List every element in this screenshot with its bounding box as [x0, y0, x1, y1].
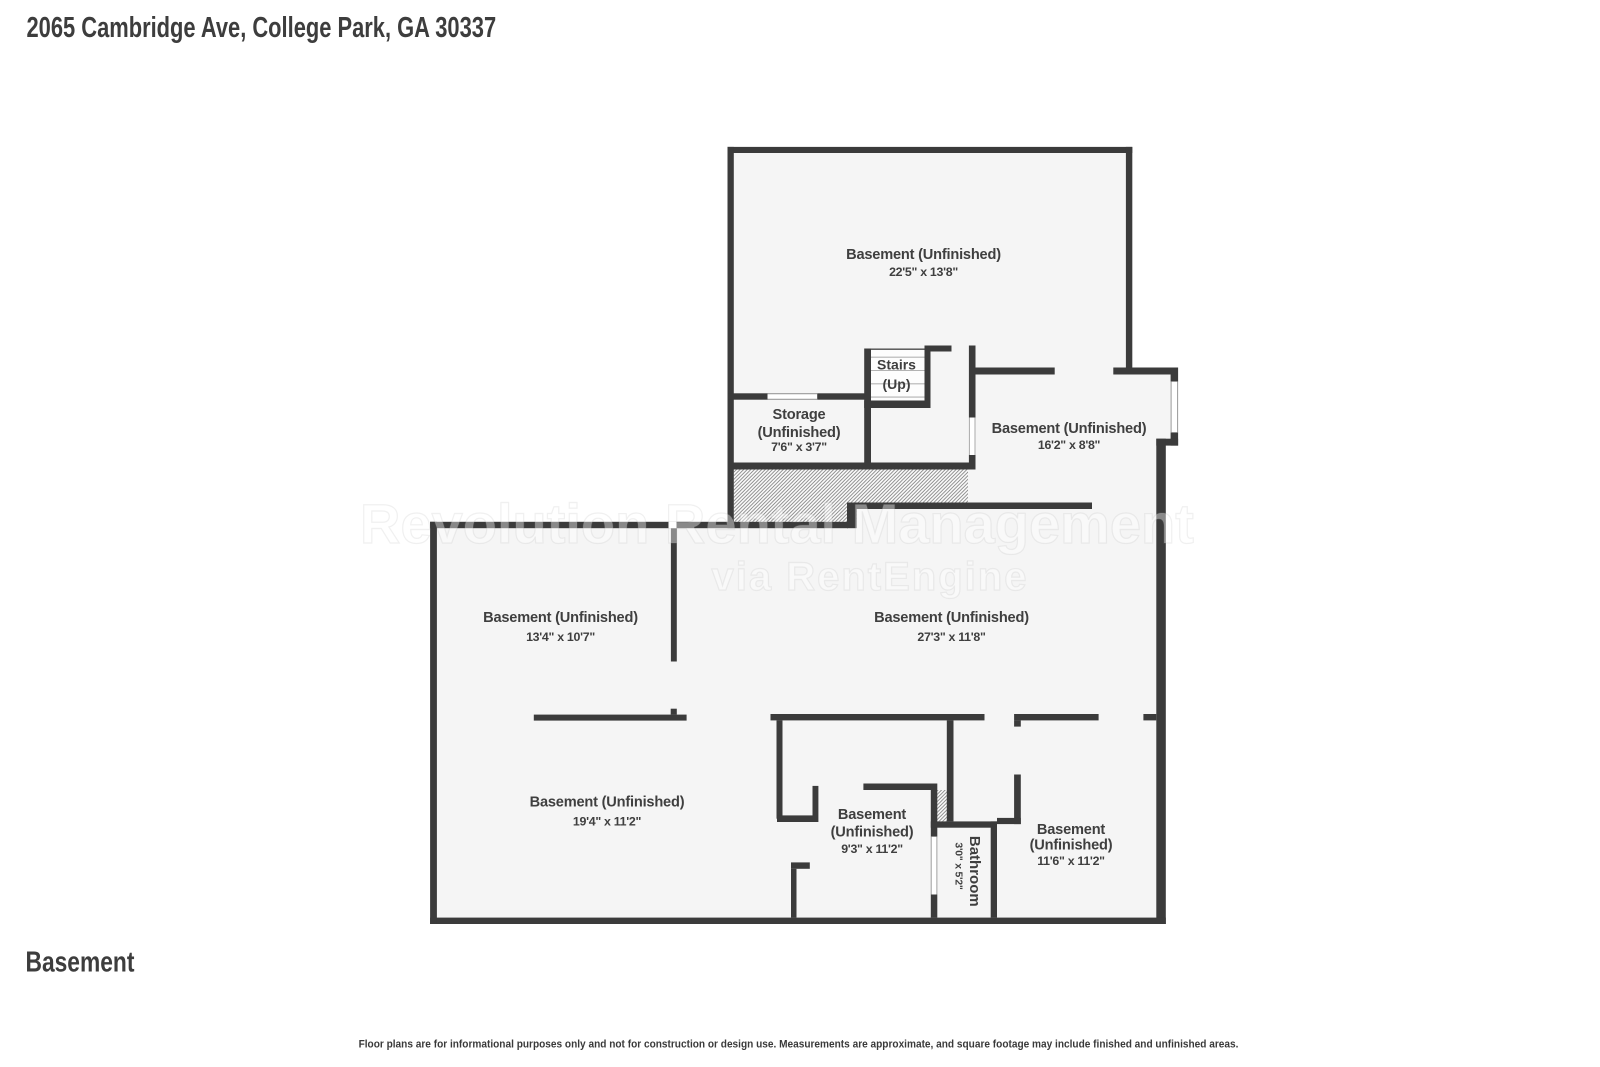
svg-text:Basement: Basement	[838, 807, 906, 823]
svg-text:3'0" x 5'2": 3'0" x 5'2"	[953, 842, 964, 890]
svg-text:22'5" x 13'8": 22'5" x 13'8"	[889, 265, 958, 279]
svg-text:Basement: Basement	[26, 947, 135, 978]
svg-text:Basement: Basement	[1037, 822, 1105, 838]
svg-text:Storage: Storage	[773, 407, 826, 423]
svg-text:via RentEngine: via RentEngine	[712, 555, 1029, 599]
svg-text:19'4" x 11'2": 19'4" x 11'2"	[573, 815, 642, 829]
svg-text:Basement (Unfinished): Basement (Unfinished)	[874, 610, 1029, 626]
svg-text:(Unfinished): (Unfinished)	[831, 825, 914, 841]
svg-text:(Unfinished): (Unfinished)	[758, 425, 841, 441]
svg-text:13'4" x 10'7": 13'4" x 10'7"	[526, 630, 595, 644]
svg-text:2065 Cambridge Ave, College Pa: 2065 Cambridge Ave, College Park, GA 303…	[27, 12, 497, 44]
svg-text:(Up): (Up)	[883, 376, 911, 392]
svg-text:Bathroom: Bathroom	[966, 836, 983, 907]
svg-text:27'3" x 11'8": 27'3" x 11'8"	[917, 630, 986, 644]
svg-text:Basement (Unfinished): Basement (Unfinished)	[483, 610, 638, 626]
svg-text:Basement (Unfinished): Basement (Unfinished)	[530, 795, 685, 811]
svg-text:9'3" x 11'2": 9'3" x 11'2"	[841, 842, 903, 856]
svg-text:Revolution Rental Management: Revolution Rental Management	[360, 492, 1194, 555]
svg-text:Floor plans are for informatio: Floor plans are for informational purpos…	[359, 1039, 1239, 1050]
svg-text:7'6" x 3'7": 7'6" x 3'7"	[771, 440, 827, 454]
svg-text:Basement (Unfinished): Basement (Unfinished)	[846, 247, 1001, 263]
svg-text:Stairs: Stairs	[877, 357, 916, 373]
svg-text:11'6" x 11'2": 11'6" x 11'2"	[1037, 854, 1105, 868]
svg-text:(Unfinished): (Unfinished)	[1030, 838, 1113, 854]
svg-text:16'2" x 8'8": 16'2" x 8'8"	[1038, 438, 1101, 452]
svg-text:Basement (Unfinished): Basement (Unfinished)	[992, 421, 1147, 437]
